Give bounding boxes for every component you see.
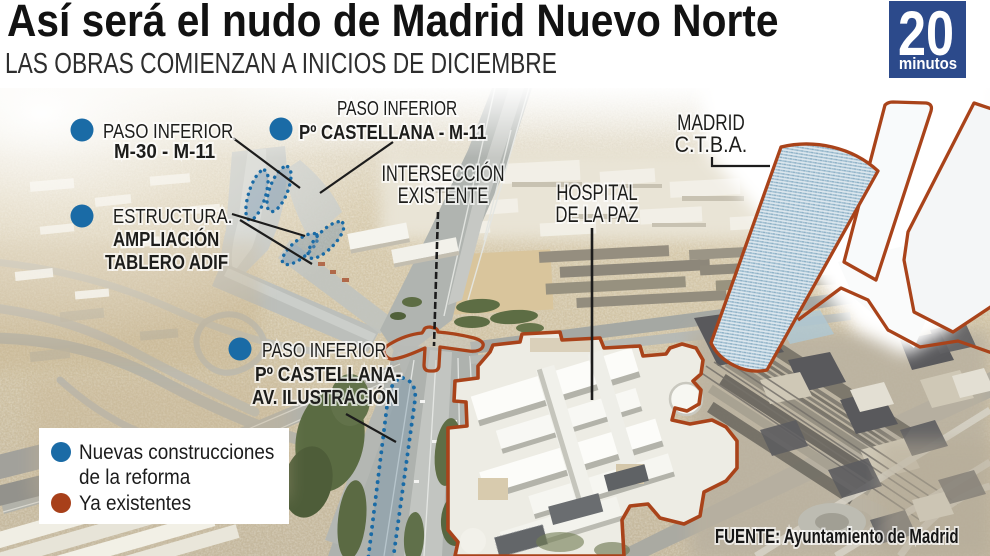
svg-text:DE LA PAZ: DE LA PAZ	[555, 203, 638, 228]
svg-text:Pº CASTELLANA-: Pº CASTELLANA-	[255, 363, 401, 385]
svg-text:ESTRUCTURA.: ESTRUCTURA.	[113, 205, 232, 228]
svg-text:de la reforma: de la reforma	[79, 466, 191, 489]
svg-text:Ya existentes: Ya existentes	[79, 492, 191, 515]
svg-text:AV. ILUSTRACIÓN: AV. ILUSTRACIÓN	[252, 386, 398, 409]
svg-text:Así será el nudo de Madrid Nue: Así será el nudo de Madrid Nuevo Norte	[7, 0, 778, 46]
svg-text:EXISTENTE: EXISTENTE	[398, 184, 489, 209]
svg-text:C.T.B.A.: C.T.B.A.	[675, 133, 748, 157]
svg-text:AMPLIACIÓN: AMPLIACIÓN	[113, 228, 219, 251]
svg-text:PASO INFERIOR: PASO INFERIOR	[262, 339, 386, 361]
svg-text:FUENTE: Ayuntamiento de Madrid: FUENTE: Ayuntamiento de Madrid	[715, 525, 959, 548]
svg-text:minutos: minutos	[899, 55, 957, 73]
svg-text:M-30 - M-11: M-30 - M-11	[114, 140, 215, 163]
svg-text:Nuevas construcciones: Nuevas construcciones	[79, 441, 274, 464]
svg-text:MADRID: MADRID	[677, 111, 745, 136]
svg-text:LAS OBRAS COMIENZAN A INICIOS: LAS OBRAS COMIENZAN A INICIOS DE DICIEMB…	[5, 46, 557, 79]
svg-text:PASO INFERIOR: PASO INFERIOR	[337, 97, 457, 119]
svg-text:TABLERO ADIF: TABLERO ADIF	[105, 251, 228, 274]
svg-text:Pº CASTELLANA - M-11: Pº CASTELLANA - M-11	[299, 121, 486, 144]
svg-text:PASO INFERIOR: PASO INFERIOR	[103, 120, 233, 143]
